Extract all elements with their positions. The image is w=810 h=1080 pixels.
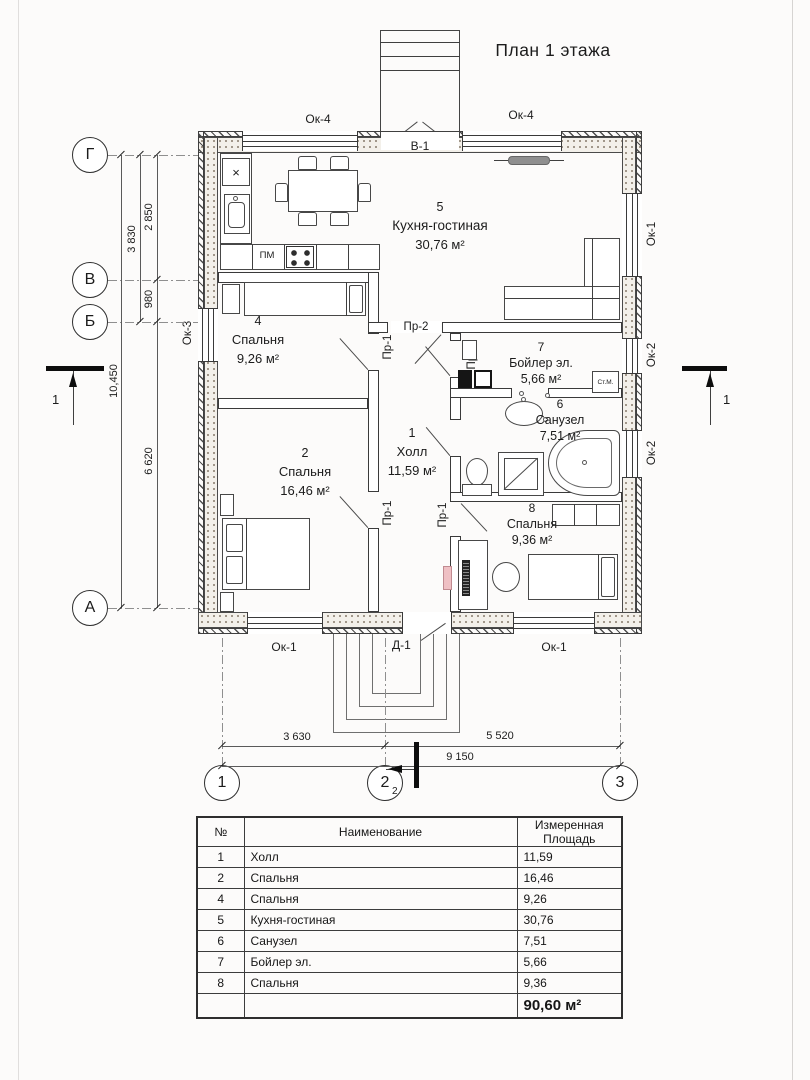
room-name: Спальня	[507, 517, 557, 531]
window-ok1-right	[622, 193, 642, 277]
cell-name: Спальня	[244, 973, 517, 994]
sheet-edge-left	[18, 0, 19, 1080]
window-ok1-bottom-left	[247, 612, 323, 634]
dim-text-980: 980	[143, 274, 155, 324]
section-label-left: 1	[52, 392, 59, 407]
label-ok1-right: Ок-1	[646, 204, 658, 264]
axis-label: 3	[616, 774, 625, 792]
label-ok4-right: Ок-4	[491, 108, 551, 122]
porch-step	[380, 70, 460, 71]
room-name: Санузел	[536, 413, 585, 427]
room-label-bedroom8: 8 Спальня 9,36 м²	[472, 501, 592, 547]
axis-label: А	[85, 599, 96, 617]
cell-area: 7,51	[517, 931, 622, 952]
cell-num: 7	[197, 952, 244, 973]
nightstand	[222, 284, 240, 314]
window-ok2-bath	[622, 430, 642, 478]
cell-area: 5,66	[517, 952, 622, 973]
boiler-unit	[458, 370, 472, 388]
axis-circle-a: А	[72, 590, 108, 626]
kitchen-sink	[228, 202, 245, 228]
axis-circle-1: 1	[204, 765, 240, 801]
pillow	[226, 524, 243, 552]
sofa-seat-line	[505, 298, 620, 299]
bed-pillow-line	[598, 554, 599, 600]
room-number: 8	[529, 501, 536, 515]
window-ok2-boiler	[622, 338, 642, 374]
room-number: 4	[255, 314, 262, 328]
label-pr1-room8: Пр-1	[437, 485, 449, 545]
room-name: Кухня-гостиная	[392, 218, 488, 233]
label-v1: В-1	[398, 139, 442, 153]
table-header-row: № Наименование Измеренная Площадь	[197, 817, 622, 847]
cell-area: 9,36	[517, 973, 622, 994]
label-ok1-bottom-left: Ок-1	[254, 640, 314, 654]
table-total-row: 90,60 м²	[197, 994, 622, 1019]
dining-table	[288, 170, 358, 212]
room-name: Холл	[397, 444, 428, 459]
dim-text-6620: 6 620	[143, 436, 155, 486]
door-swing-room2	[339, 496, 368, 528]
pillow	[349, 285, 363, 313]
cell-name: Кухня-гостиная	[244, 910, 517, 931]
kitchen-faucet	[233, 196, 238, 201]
pillow	[226, 556, 243, 584]
shelf	[220, 592, 234, 612]
cell-name: Спальня	[244, 868, 517, 889]
section-label-right: 1	[723, 392, 730, 407]
axis-label: 1	[218, 774, 227, 792]
cell-num: 4	[197, 889, 244, 910]
wall-room4-room2	[218, 398, 368, 409]
room-area: 7,51 м²	[540, 429, 581, 443]
wardrobe-divider	[596, 504, 597, 526]
cell-num: 5	[197, 910, 244, 931]
room-name: Спальня	[232, 332, 284, 347]
room-label-bedroom4: 4 Спальня 9,26 м²	[198, 314, 318, 366]
room-area: 9,26 м²	[237, 351, 279, 366]
axis-label: Б	[85, 313, 96, 331]
room-number: 5	[437, 200, 444, 214]
chair	[275, 183, 288, 202]
axis-circle-b: Б	[72, 304, 108, 340]
area-table: № Наименование Измеренная Площадь 1 Холл…	[196, 816, 623, 1019]
radiator	[508, 156, 550, 165]
cell-area: 9,26	[517, 889, 622, 910]
exterior-wall-left-inner	[204, 137, 218, 628]
bed-room4	[244, 282, 366, 316]
room-name: Бойлер эл.	[509, 356, 573, 370]
axis-circle-v: В	[72, 262, 108, 298]
room-label-boiler: 7 Бойлер эл. 5,66 м²	[481, 340, 601, 386]
monitor	[462, 560, 470, 596]
cell-empty	[197, 994, 244, 1019]
col-header-area: Измеренная Площадь	[517, 817, 622, 847]
chair	[298, 156, 317, 170]
cell-num: 8	[197, 973, 244, 994]
room-name: Спальня	[279, 464, 331, 479]
room-number: 7	[538, 340, 545, 354]
dim-line	[121, 155, 122, 608]
door-swing-boiler	[425, 346, 450, 376]
toilet-tank	[462, 484, 492, 496]
radiator-pink	[443, 566, 452, 590]
door-mark	[519, 391, 524, 396]
label-pr1-room2: Пр-1	[382, 483, 394, 543]
washbasin-boiler	[462, 340, 477, 360]
table-row: 1 Холл 11,59	[197, 847, 622, 868]
sheet-edge-right	[792, 0, 793, 1080]
dishwasher-label: ПМ	[252, 250, 282, 261]
room-area: 9,36 м²	[512, 533, 553, 547]
dim-text-3830: 3 830	[126, 214, 138, 264]
label-ok1-bottom-right: Ок-1	[524, 640, 584, 654]
axis-circle-3: 3	[602, 765, 638, 801]
col-header-num: №	[197, 817, 244, 847]
table-row: 8 Спальня 9,36	[197, 973, 622, 994]
wall-center-right-a	[450, 333, 461, 341]
room-area: 11,59 м²	[388, 463, 436, 478]
fridge-mark: ×	[232, 165, 240, 180]
table-row: 2 Спальня 16,46	[197, 868, 622, 889]
room-number: 1	[409, 426, 416, 440]
table-row: 4 Спальня 9,26	[197, 889, 622, 910]
dim-line	[222, 746, 620, 747]
counter-divider	[316, 245, 317, 269]
sofa-seat-line	[592, 239, 593, 319]
cell-name: Холл	[244, 847, 517, 868]
drawing-sheet: План 1 этажа Ок-4 Ок-4 В-1 Ок-3 Ок-1 Ок-…	[0, 0, 810, 1080]
label-pr1-room4: Пр-1	[382, 317, 394, 377]
room-area: 5,66 м²	[521, 372, 562, 386]
door-swing-room4	[339, 338, 368, 370]
desk-chair	[492, 562, 520, 592]
label-ok2-boiler: Ок-2	[646, 325, 658, 385]
dim-line	[222, 766, 620, 767]
dim-text-5520: 5 520	[470, 730, 530, 742]
section-arrow-icon	[706, 373, 714, 387]
window-ok4-left	[242, 131, 358, 151]
window-ok4-right	[462, 131, 562, 151]
cell-area: 11,59	[517, 847, 622, 868]
cell-name: Бойлер эл.	[244, 952, 517, 973]
bed-pillow-line	[346, 282, 347, 316]
cell-num: 6	[197, 931, 244, 952]
wall-center-left-c	[368, 528, 379, 612]
cell-empty	[244, 994, 517, 1019]
axis-circle-g: Г	[72, 137, 108, 173]
dim-text-9150: 9 150	[430, 751, 490, 763]
chair	[298, 212, 317, 226]
section-mark-bar	[46, 366, 104, 371]
room-label-bathroom: 6 Санузел 7,51 м²	[500, 397, 620, 443]
dim-text-3630: 3 630	[267, 731, 327, 743]
section-label-bottom: 2	[392, 786, 398, 797]
section-arrow-icon	[69, 373, 77, 387]
stove	[286, 246, 314, 268]
dim-text-10450: 10,450	[108, 351, 120, 411]
cell-name: Спальня	[244, 889, 517, 910]
bathtub-drain	[582, 460, 587, 465]
section-arrow-icon	[388, 765, 402, 773]
axis-label: 2	[381, 774, 390, 792]
cell-name: Санузел	[244, 931, 517, 952]
cell-area: 30,76	[517, 910, 622, 931]
porch-steps	[372, 634, 421, 694]
bed-headboard-line	[246, 518, 247, 590]
axis-label: Г	[86, 146, 95, 164]
section-mark-bar	[414, 742, 419, 788]
shelf	[220, 494, 234, 516]
chair	[358, 183, 371, 202]
porch-step	[380, 56, 460, 57]
window-ok1-bottom-right	[513, 612, 595, 634]
table-row: 5 Кухня-гостиная 30,76	[197, 910, 622, 931]
room-area: 16,46 м²	[280, 483, 329, 498]
axis-label: В	[85, 271, 96, 289]
room-number: 6	[557, 397, 564, 411]
col-header-name: Наименование	[244, 817, 517, 847]
room-label-hall: 1 Холл 11,59 м²	[352, 426, 472, 478]
label-ok4-left: Ок-4	[288, 112, 348, 126]
pillow	[601, 557, 615, 597]
room-area: 30,76 м²	[415, 237, 464, 252]
fridge: ×	[222, 158, 250, 186]
table-row: 7 Бойлер эл. 5,66	[197, 952, 622, 973]
chair	[330, 212, 349, 226]
dim-text-2850: 2 850	[143, 192, 155, 242]
dim-line	[157, 155, 158, 608]
cell-num: 2	[197, 868, 244, 889]
label-ok2-bath: Ок-2	[646, 423, 658, 483]
sofa-bottom-section	[504, 286, 620, 320]
chair	[330, 156, 349, 170]
counter-divider	[284, 245, 285, 269]
label-ok3: Ок-3	[182, 303, 194, 363]
cell-area: 16,46	[517, 868, 622, 889]
room-label-bedroom2: 2 Спальня 16,46 м²	[245, 446, 365, 498]
page-title: План 1 этажа	[468, 40, 638, 61]
porch-step	[380, 42, 460, 43]
cell-num: 1	[197, 847, 244, 868]
room-label-kitchen: 5 Кухня-гостиная 30,76 м²	[380, 200, 500, 252]
dim-line	[140, 155, 141, 322]
label-pr2: Пр-2	[391, 321, 441, 333]
area-table-wrap: № Наименование Измеренная Площадь 1 Холл…	[196, 816, 623, 1019]
counter-divider	[348, 245, 349, 269]
section-mark-bar	[682, 366, 727, 371]
room-number: 2	[302, 446, 309, 460]
cell-total-area: 90,60 м²	[517, 994, 622, 1019]
table-row: 6 Санузел 7,51	[197, 931, 622, 952]
